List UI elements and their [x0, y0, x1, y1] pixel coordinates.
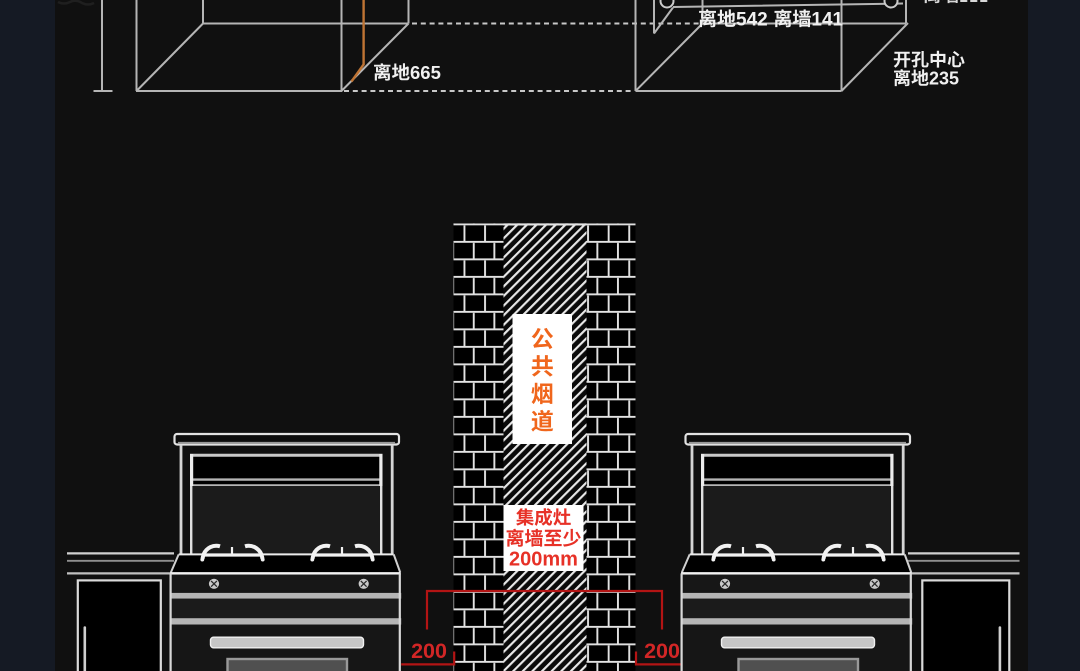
svg-text:200mm: 200mm	[509, 549, 578, 571]
svg-text:200: 200	[644, 639, 680, 663]
svg-text:542: 542	[736, 10, 768, 31]
svg-text:141: 141	[811, 10, 843, 31]
svg-text:665: 665	[410, 62, 441, 83]
svg-text:200: 200	[411, 639, 447, 663]
svg-text:235: 235	[929, 69, 959, 89]
